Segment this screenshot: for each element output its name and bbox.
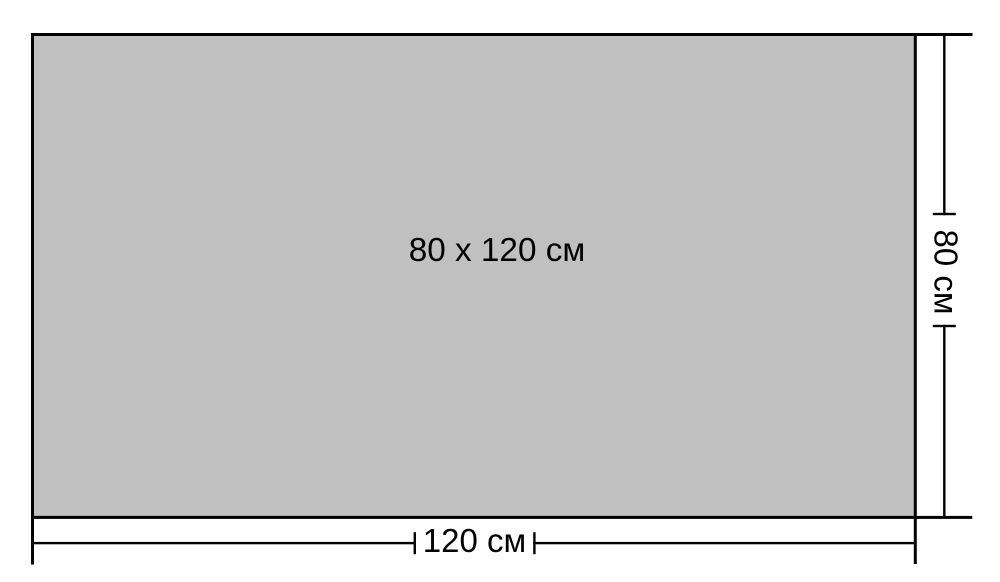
svg-text:80 x 120 см: 80 x 120 см <box>409 232 586 269</box>
svg-text:80 см: 80 см <box>928 229 965 314</box>
svg-text:120 см: 120 см <box>423 522 526 559</box>
